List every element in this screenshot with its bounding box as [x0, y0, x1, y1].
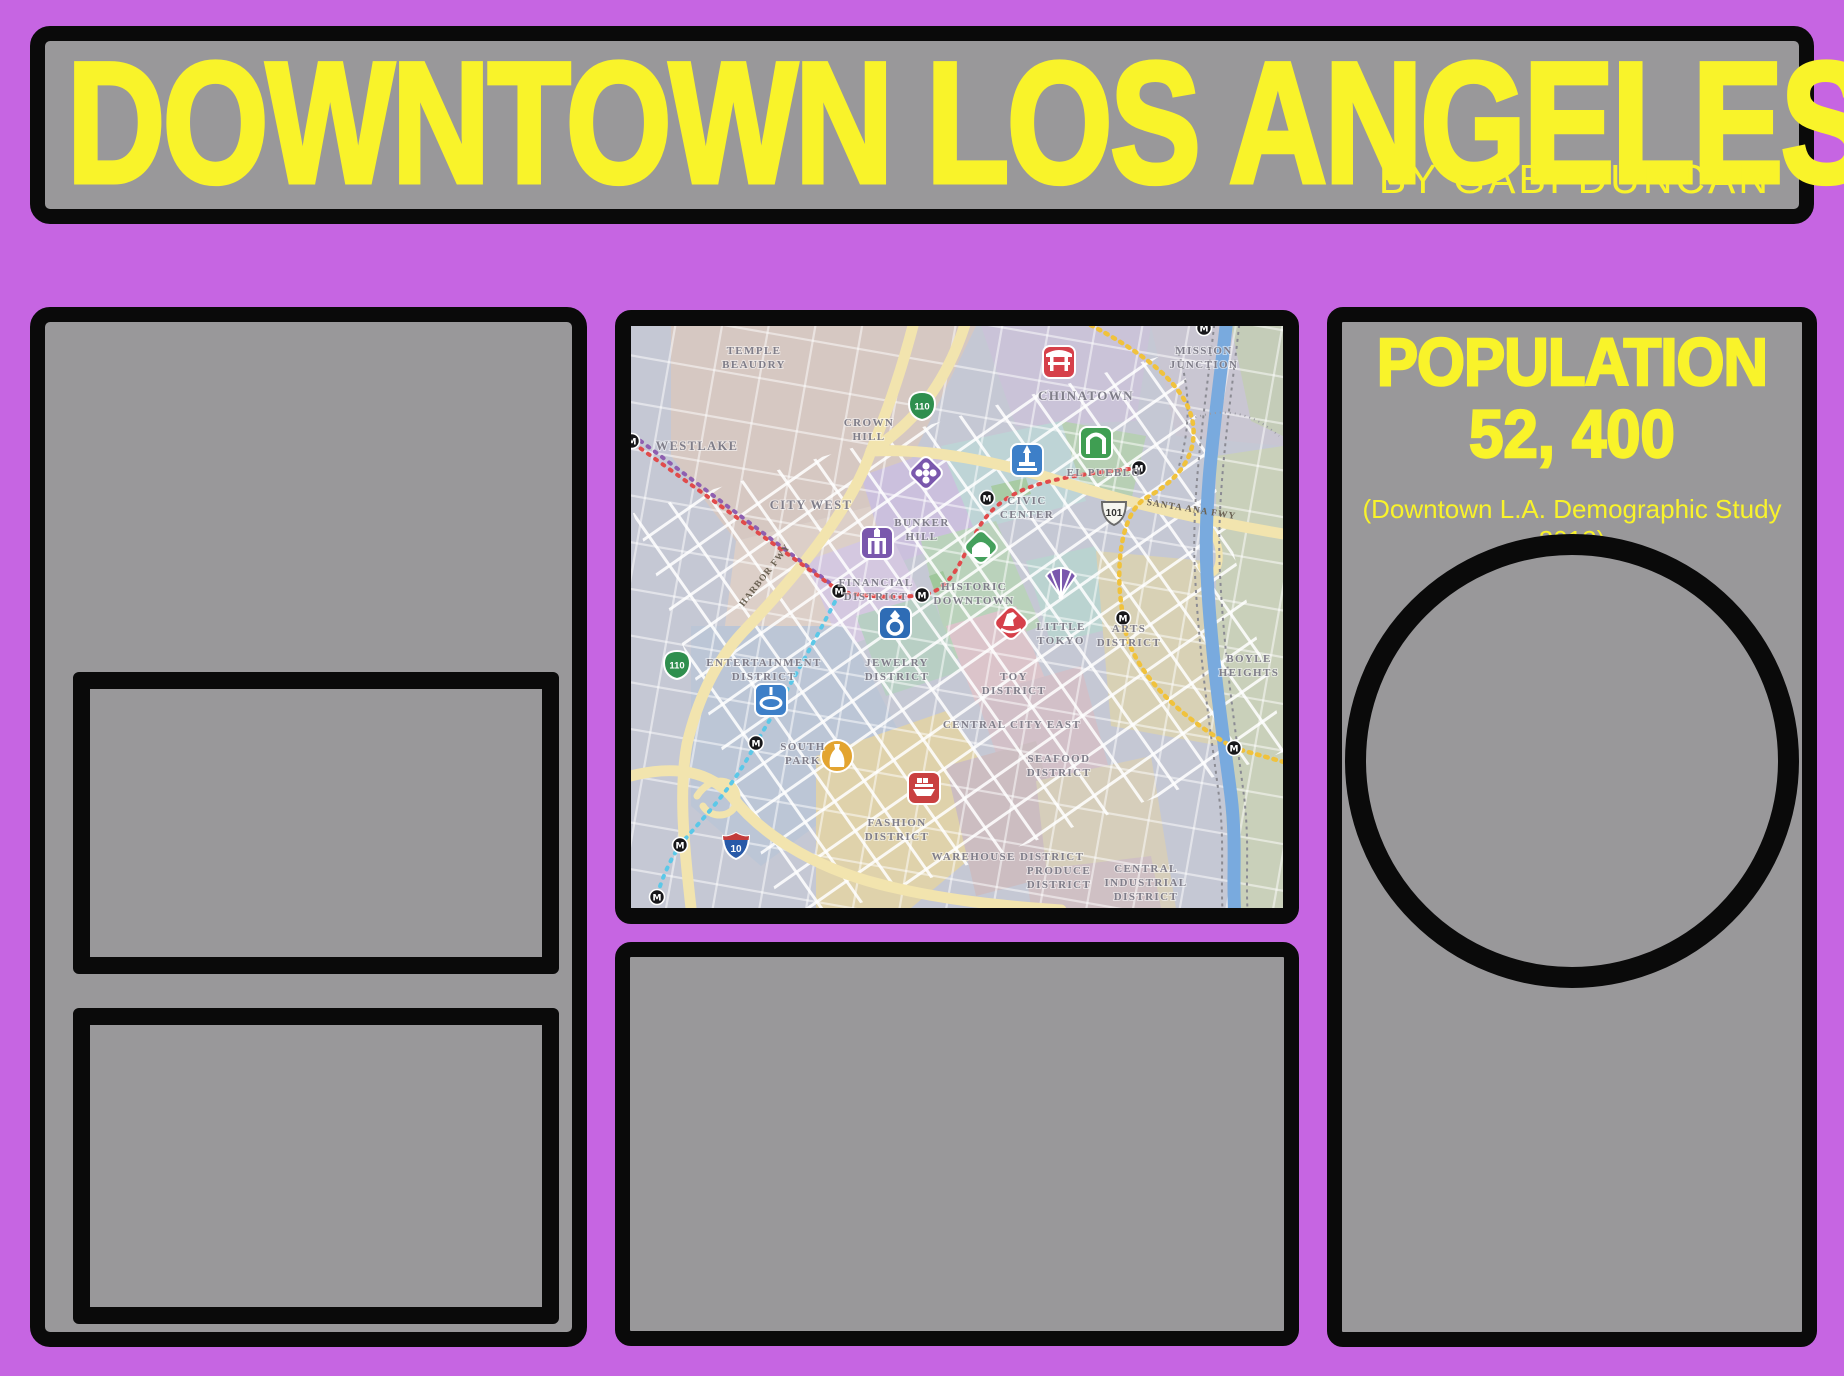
- svg-text:M: M: [1200, 326, 1209, 334]
- metro-station-marker: M: [650, 890, 665, 905]
- metro-station-marker: M: [915, 588, 930, 603]
- svg-text:10: 10: [730, 844, 742, 855]
- state-route-shield: 110: [664, 651, 690, 679]
- svg-text:M: M: [676, 841, 685, 851]
- library-icon: [861, 527, 893, 559]
- metro-station-marker: M: [1227, 741, 1242, 756]
- el-pueblo-icon: [1080, 427, 1112, 459]
- svg-text:M: M: [918, 591, 927, 601]
- left-placeholder-box-1: [73, 672, 559, 974]
- metro-station-marker: M: [980, 491, 995, 506]
- left-panel: [30, 307, 587, 1347]
- metro-station-marker: M: [1197, 326, 1212, 336]
- poster-byline: BY GABI DUNCAN: [1379, 156, 1771, 203]
- map-district-label: CHINATOWN: [1038, 388, 1134, 403]
- warehouse-ship-icon: [908, 772, 940, 804]
- svg-text:M: M: [752, 739, 761, 749]
- svg-text:M: M: [983, 494, 992, 504]
- svg-text:101: 101: [1106, 508, 1123, 519]
- poster-canvas: DOWNTOWN LOS ANGELES BY GABI DUNCAN: [0, 0, 1844, 1376]
- map-district-label: WESTLAKE: [656, 439, 739, 453]
- population-heading: POPULATION: [1360, 332, 1783, 394]
- middle-placeholder-box: [615, 942, 1299, 1346]
- metro-station-marker: M: [673, 838, 688, 853]
- state-route-shield: 110: [909, 392, 935, 420]
- chinatown-gate-icon: [1043, 346, 1075, 378]
- map-district-label: CENTRALINDUSTRIALDISTRICT: [1104, 863, 1187, 903]
- svg-text:110: 110: [669, 661, 684, 672]
- city-hall-icon: [1011, 444, 1043, 476]
- metro-station-marker: M: [631, 434, 640, 449]
- jewelry-ring-icon: [879, 607, 911, 639]
- map-panel: 11011010110 MMMMMMMMMMM TEMPLEBEAUDRYMIS…: [615, 310, 1299, 924]
- map-district-label: CITY WEST: [770, 498, 852, 512]
- svg-text:M: M: [653, 893, 662, 903]
- svg-text:110: 110: [914, 402, 929, 413]
- metro-station-marker: M: [749, 736, 764, 751]
- map-district-label: EL PUEBLO: [1067, 467, 1142, 479]
- svg-text:M: M: [631, 437, 637, 447]
- stadium-icon: [755, 684, 787, 716]
- downtown-la-district-map: 11011010110 MMMMMMMMMMM TEMPLEBEAUDRYMIS…: [631, 326, 1283, 908]
- map-district-label: CENTRAL CITY EAST: [943, 719, 1081, 731]
- population-circle-placeholder: [1345, 534, 1799, 988]
- header-panel: DOWNTOWN LOS ANGELES BY GABI DUNCAN: [30, 26, 1814, 224]
- left-placeholder-box-2: [73, 1008, 559, 1324]
- population-panel: POPULATION 52, 400 (Downtown L.A. Demogr…: [1327, 307, 1817, 1347]
- fashion-icon: [821, 740, 853, 772]
- map-district-label: WAREHOUSE DISTRICT: [932, 851, 1085, 863]
- population-value: 52, 400: [1360, 396, 1783, 473]
- svg-text:M: M: [1230, 744, 1239, 754]
